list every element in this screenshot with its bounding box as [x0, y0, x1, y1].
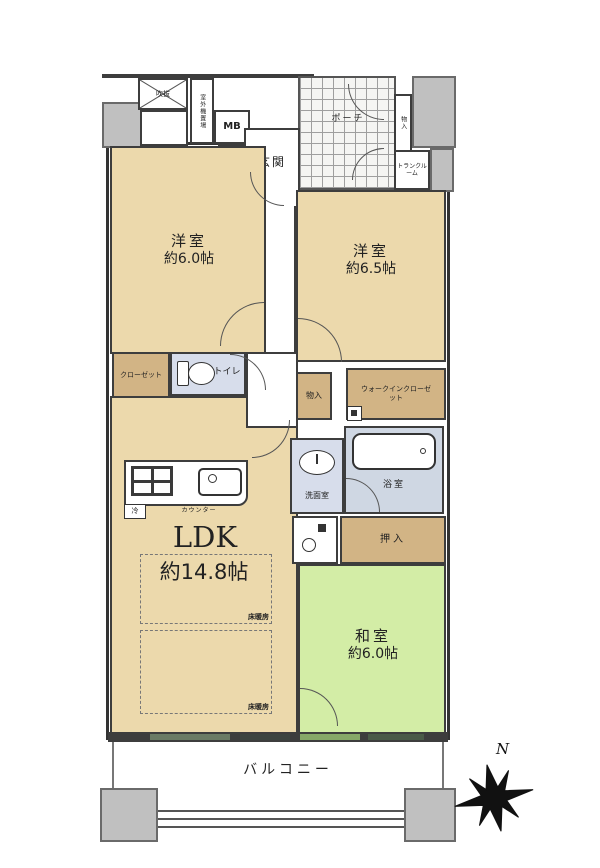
compass-north-label: N	[495, 740, 510, 758]
hallway	[262, 206, 296, 354]
window-segment	[150, 734, 230, 740]
balcony-rail-line	[150, 826, 408, 828]
bedroom-left-size: 約6.0帖	[164, 251, 214, 269]
balcony-rail-line	[150, 810, 408, 812]
pillar-right	[404, 788, 456, 842]
washitsu-label: 和室 約6.0帖	[308, 622, 438, 668]
kitchen-faucet-icon	[208, 474, 217, 483]
bedroom-left-label: 洋室 約6.0帖	[124, 228, 254, 272]
porch-storage: 物入	[394, 94, 412, 152]
floor-heating-area-2: 床暖房	[140, 630, 272, 714]
washitsu-size: 約6.0帖	[348, 646, 398, 664]
bedroom-right-size: 約6.5帖	[346, 261, 396, 279]
void-label: 吹抜	[140, 80, 186, 108]
storage-center: 物入	[296, 372, 332, 420]
bathroom-label: 浴室	[374, 478, 414, 494]
trunk-room: トランクルーム	[394, 150, 430, 190]
sink-faucet-icon	[316, 454, 318, 464]
outdoor-unit-space: 室外機置場	[190, 78, 214, 144]
exterior-gray-right-lower	[430, 148, 454, 192]
laundry-symbol	[318, 524, 326, 532]
laundry-pan-icon	[302, 538, 316, 552]
ldk-name: LDK	[150, 520, 260, 554]
kitchen-sink-icon	[198, 468, 242, 496]
washitsu-name: 和室	[355, 627, 391, 646]
void-box: 吹抜	[138, 78, 188, 110]
wic-symbol-box	[347, 406, 362, 421]
bedroom-right-label: 洋室 約6.5帖	[306, 238, 436, 282]
laundry-space	[292, 516, 338, 564]
stove-burner	[134, 483, 151, 494]
balcony-rail-line	[150, 818, 408, 820]
void-lower-box	[140, 110, 188, 146]
bedroom-right-name: 洋室	[353, 242, 389, 261]
bathtub-drain-icon	[420, 448, 426, 454]
compass: N	[452, 736, 542, 846]
compass-star	[452, 756, 540, 839]
washroom-label: 洗面室	[291, 488, 343, 504]
window-segment	[300, 734, 360, 740]
window-segment	[368, 734, 424, 740]
counter-label: カウンター	[168, 506, 230, 516]
floor-heating-label-1: 床暖房	[248, 612, 269, 622]
pillar-left	[100, 788, 158, 842]
wic-symbol	[351, 410, 357, 416]
floor-heating-area-1: 床暖房	[140, 554, 272, 624]
stove-burner	[154, 483, 171, 494]
balcony-label: バルコニー	[218, 760, 358, 782]
stove-icon	[131, 466, 173, 496]
floor-plan: 吹抜 室外機置場 MB ポーチ 物入 トランクルーム 玄関 下足入 洋室 約6.…	[0, 0, 600, 868]
exterior-gray-right	[412, 76, 456, 148]
stove-burner	[154, 469, 171, 480]
fridge-space: 冷	[124, 504, 146, 519]
closet-left: クローゼット	[112, 352, 170, 398]
window-segment	[240, 734, 290, 740]
stove-burner	[134, 469, 151, 480]
floor-heating-label-2: 床暖房	[248, 702, 269, 712]
bedroom-left-name: 洋室	[171, 232, 207, 251]
oshiire: 押入	[340, 516, 446, 564]
